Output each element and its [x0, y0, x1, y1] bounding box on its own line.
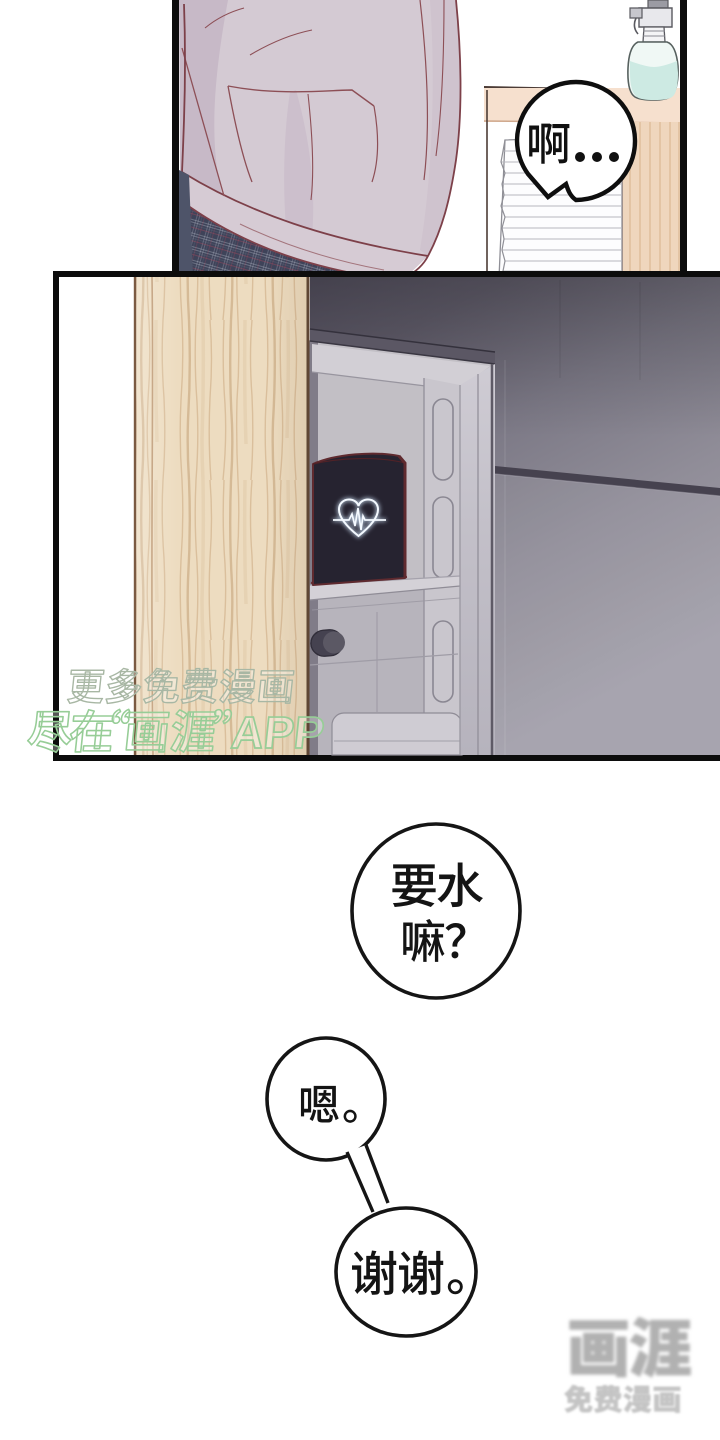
svg-text:APP: APP [229, 707, 327, 758]
